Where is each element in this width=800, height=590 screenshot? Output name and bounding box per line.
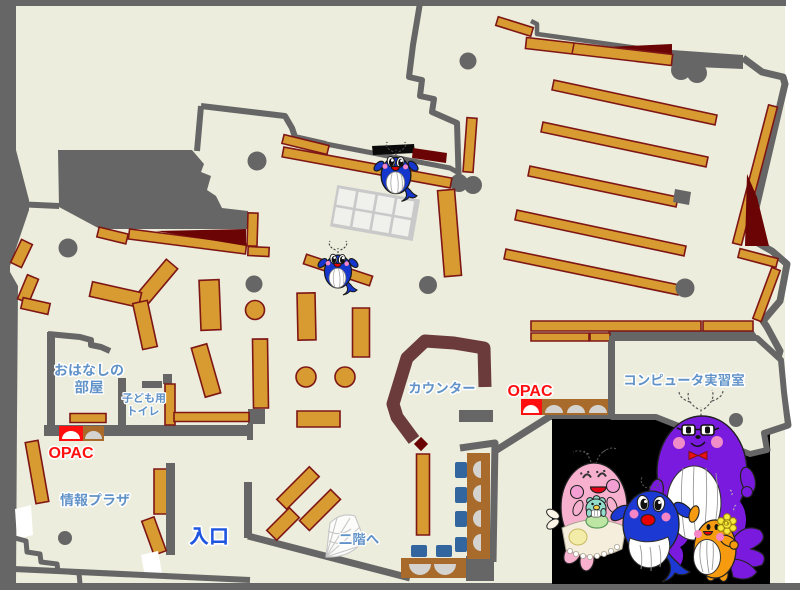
svg-text:OPAC: OPAC — [507, 383, 552, 400]
svg-text:OPAC: OPAC — [48, 445, 93, 462]
